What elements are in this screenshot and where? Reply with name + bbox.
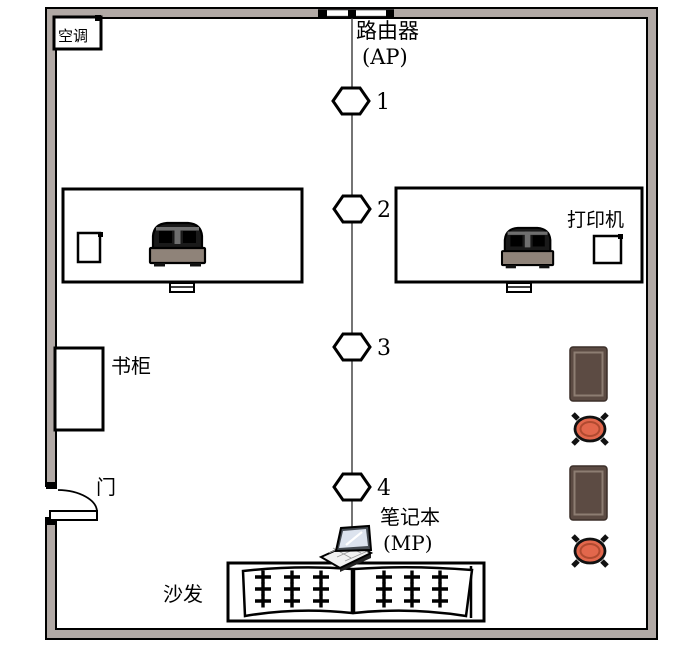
armchair-top [570,347,607,401]
router-label-line1: 路由器 [356,19,419,43]
armchair-bottom [570,466,607,520]
air-conditioner-mount-dot [95,15,101,21]
floor-plan-svg: 空调 路由器 (AP) 1 2 3 4 打印机 [0,0,700,647]
door-leaf [50,511,97,520]
stool-bottom [573,536,607,566]
air-conditioner-label: 空调 [58,27,88,45]
printer-label: 打印机 [567,209,624,231]
stool-top [573,414,607,444]
sofa-label: 沙发 [163,582,203,606]
sofa-cushion-left [243,567,352,616]
measurement-node-1: 1 [333,88,390,115]
right-desk: 打印机 [396,188,642,292]
laptop-label-line2: (MP) [383,531,433,555]
measurement-node-2: 2 [334,196,391,223]
desktop-monitor-icon-right [502,228,553,268]
floor-plan-figure: 空调 路由器 (AP) 1 2 3 4 打印机 [0,0,700,647]
window-ap-mount [318,9,394,17]
right-desk-chair [507,283,531,292]
left-desk [63,189,302,292]
bookcase-label: 书柜 [111,354,151,378]
node-1-number: 1 [376,90,390,115]
left-desk-chair [170,283,194,292]
printer [594,234,623,263]
door-label: 门 [96,475,116,499]
node-2-number: 2 [377,198,391,223]
laptop-label-line1: 笔记本 [380,505,440,529]
node-4-number: 4 [377,476,391,501]
book-on-desk [78,232,103,262]
router-label-line2: (AP) [362,45,408,69]
desktop-monitor-icon-left [150,223,205,267]
node-3-number: 3 [377,336,391,361]
measurement-node-4: 4 [334,474,391,501]
measurement-node-3: 3 [334,334,391,361]
air-conditioner: 空调 [54,15,101,49]
